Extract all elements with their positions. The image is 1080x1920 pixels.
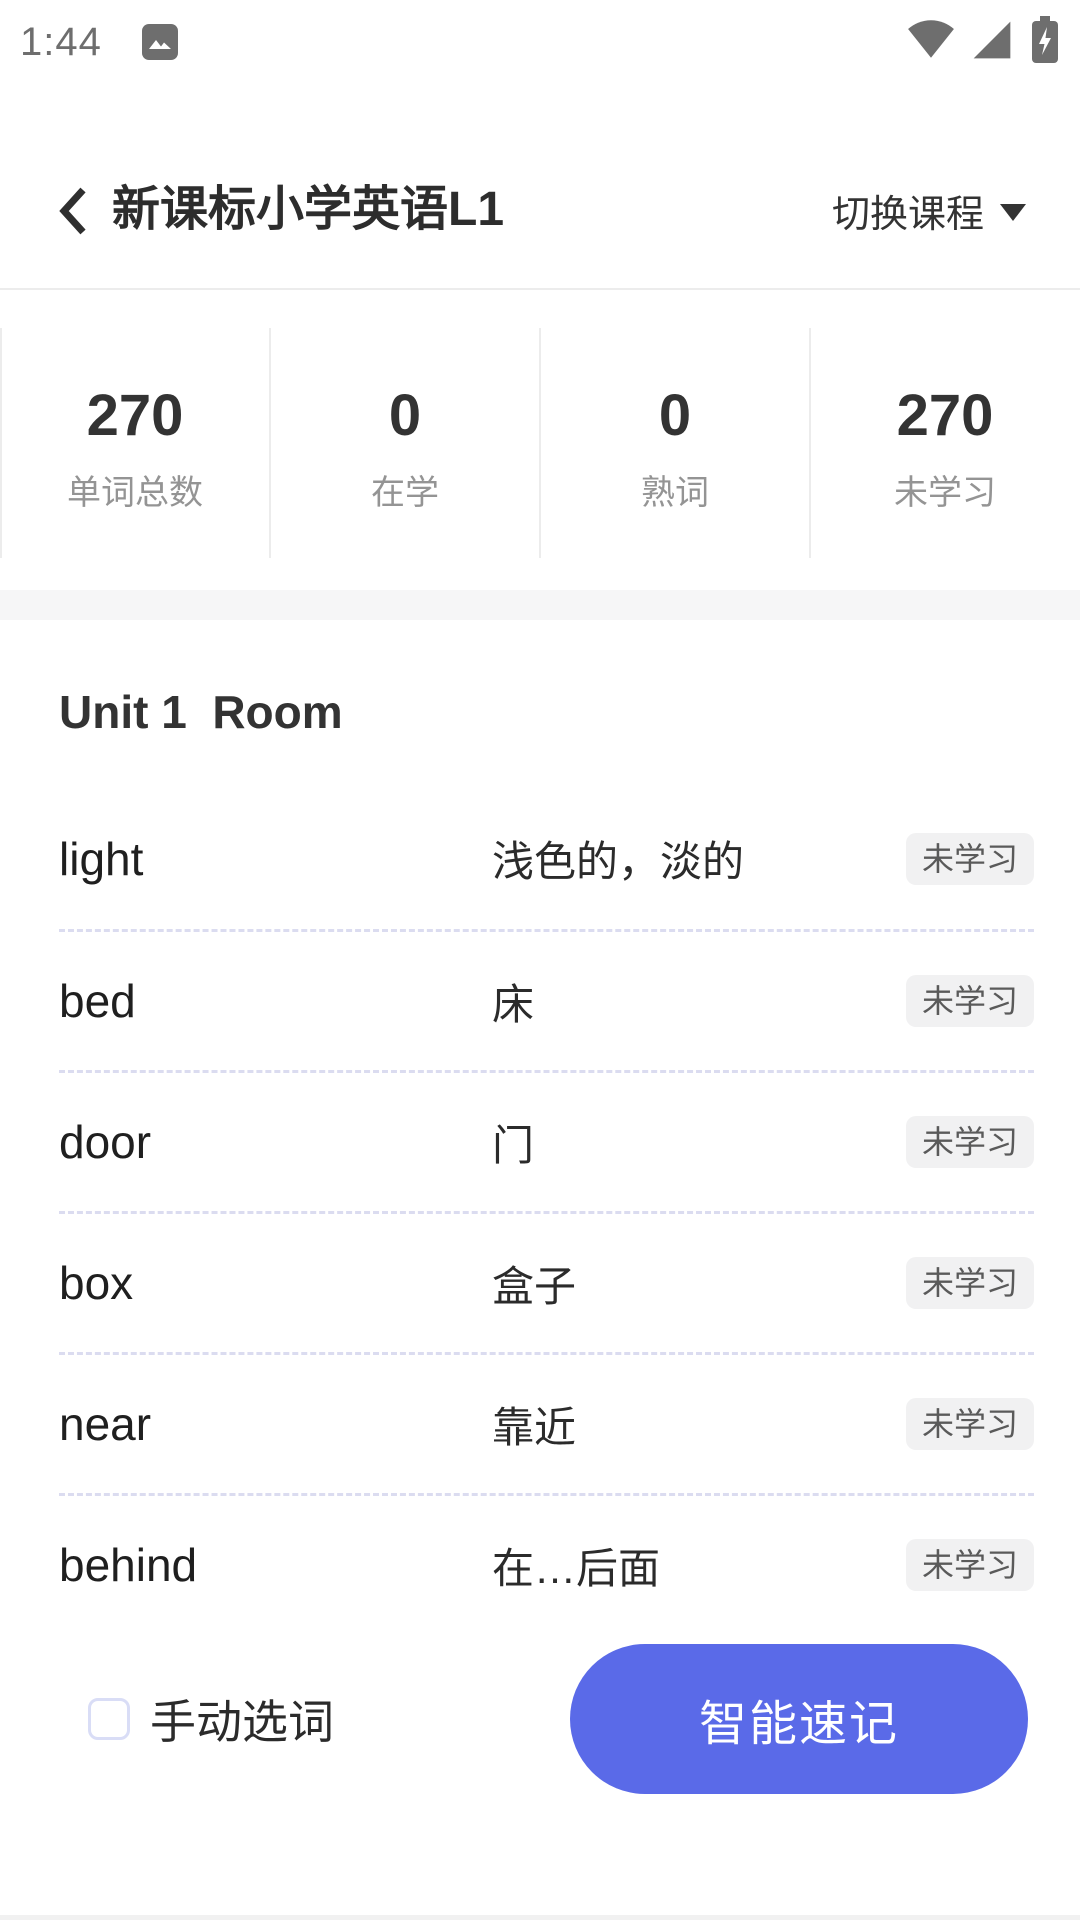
word-row[interactable]: behind 在…后面 未学习: [59, 1493, 1034, 1634]
stat-known-words: 0 熟词: [540, 290, 810, 590]
bottom-edge-strip: [0, 1915, 1080, 1920]
word-meaning: 门: [492, 1112, 906, 1173]
word-english: behind: [59, 1538, 492, 1592]
stat-not-learned: 270 未学习: [810, 290, 1080, 590]
word-english: light: [59, 832, 492, 886]
status-icons: [906, 15, 1062, 70]
word-list: light 浅色的，淡的 未学习 bed 床 未学习 door 门 未学习 bo…: [59, 788, 1034, 1634]
stat-total-words: 270 单词总数: [0, 290, 270, 590]
word-status-badge: 未学习: [906, 833, 1034, 885]
stat-value: 0: [540, 382, 810, 449]
word-english: door: [59, 1115, 492, 1169]
stat-value: 270: [0, 382, 270, 449]
manual-select-checkbox[interactable]: [88, 1698, 130, 1740]
word-meaning: 盒子: [492, 1253, 906, 1314]
word-row[interactable]: box 盒子 未学习: [59, 1211, 1034, 1352]
switch-course-button[interactable]: 切换课程: [832, 183, 1026, 238]
bottom-action-bar: 手动选词 智能速记: [0, 1644, 1080, 1794]
wifi-icon: [906, 18, 956, 67]
stat-label: 未学习: [810, 465, 1080, 514]
manual-select-label: 手动选词: [150, 1686, 334, 1752]
status-bar: 1:44: [0, 0, 1080, 70]
stats-divider: [809, 328, 811, 558]
word-status-badge: 未学习: [906, 1539, 1034, 1591]
word-english: bed: [59, 974, 492, 1028]
battery-charging-icon: [1028, 15, 1062, 70]
section-separator: [0, 590, 1080, 620]
word-list-section: Unit 1 Room light 浅色的，淡的 未学习 bed 床 未学习 d…: [0, 686, 1080, 1634]
course-title: 新课标小学英语L1: [112, 182, 504, 238]
word-row[interactable]: near 靠近 未学习: [59, 1352, 1034, 1493]
word-status-badge: 未学习: [906, 1116, 1034, 1168]
app-screen: 1:44 新课标小学英语L1 切换课程: [0, 0, 1080, 1920]
word-english: near: [59, 1397, 492, 1451]
stats-divider: [269, 328, 271, 558]
word-meaning: 浅色的，淡的: [492, 828, 906, 889]
page-header: 新课标小学英语L1 切换课程: [0, 70, 1080, 290]
cellular-signal-icon: [970, 18, 1014, 67]
screenshot-notification-icon: [140, 22, 180, 62]
word-meaning: 靠近: [492, 1394, 906, 1455]
word-row[interactable]: light 浅色的，淡的 未学习: [59, 788, 1034, 929]
stat-label: 在学: [270, 465, 540, 514]
stats-summary: 270 单词总数 0 在学 0 熟词 270 未学习: [0, 290, 1080, 590]
chevron-down-icon: [1000, 204, 1026, 221]
word-status-badge: 未学习: [906, 1398, 1034, 1450]
word-meaning: 在…后面: [492, 1535, 906, 1596]
stats-divider: [539, 328, 541, 558]
smart-memorize-button[interactable]: 智能速记: [570, 1644, 1028, 1794]
stat-value: 0: [270, 382, 540, 449]
word-status-badge: 未学习: [906, 975, 1034, 1027]
unit-title: Unit 1 Room: [59, 686, 1034, 738]
stat-label: 熟词: [540, 465, 810, 514]
stat-learning: 0 在学: [270, 290, 540, 590]
word-status-badge: 未学习: [906, 1257, 1034, 1309]
word-meaning: 床: [492, 971, 906, 1032]
back-button[interactable]: [56, 184, 90, 238]
stats-divider: [0, 328, 2, 558]
word-english: box: [59, 1256, 492, 1310]
clock: 1:44: [20, 20, 102, 65]
stat-label: 单词总数: [0, 465, 270, 514]
stat-value: 270: [810, 382, 1080, 449]
word-row[interactable]: bed 床 未学习: [59, 929, 1034, 1070]
switch-course-label: 切换课程: [832, 183, 984, 238]
word-row[interactable]: door 门 未学习: [59, 1070, 1034, 1211]
